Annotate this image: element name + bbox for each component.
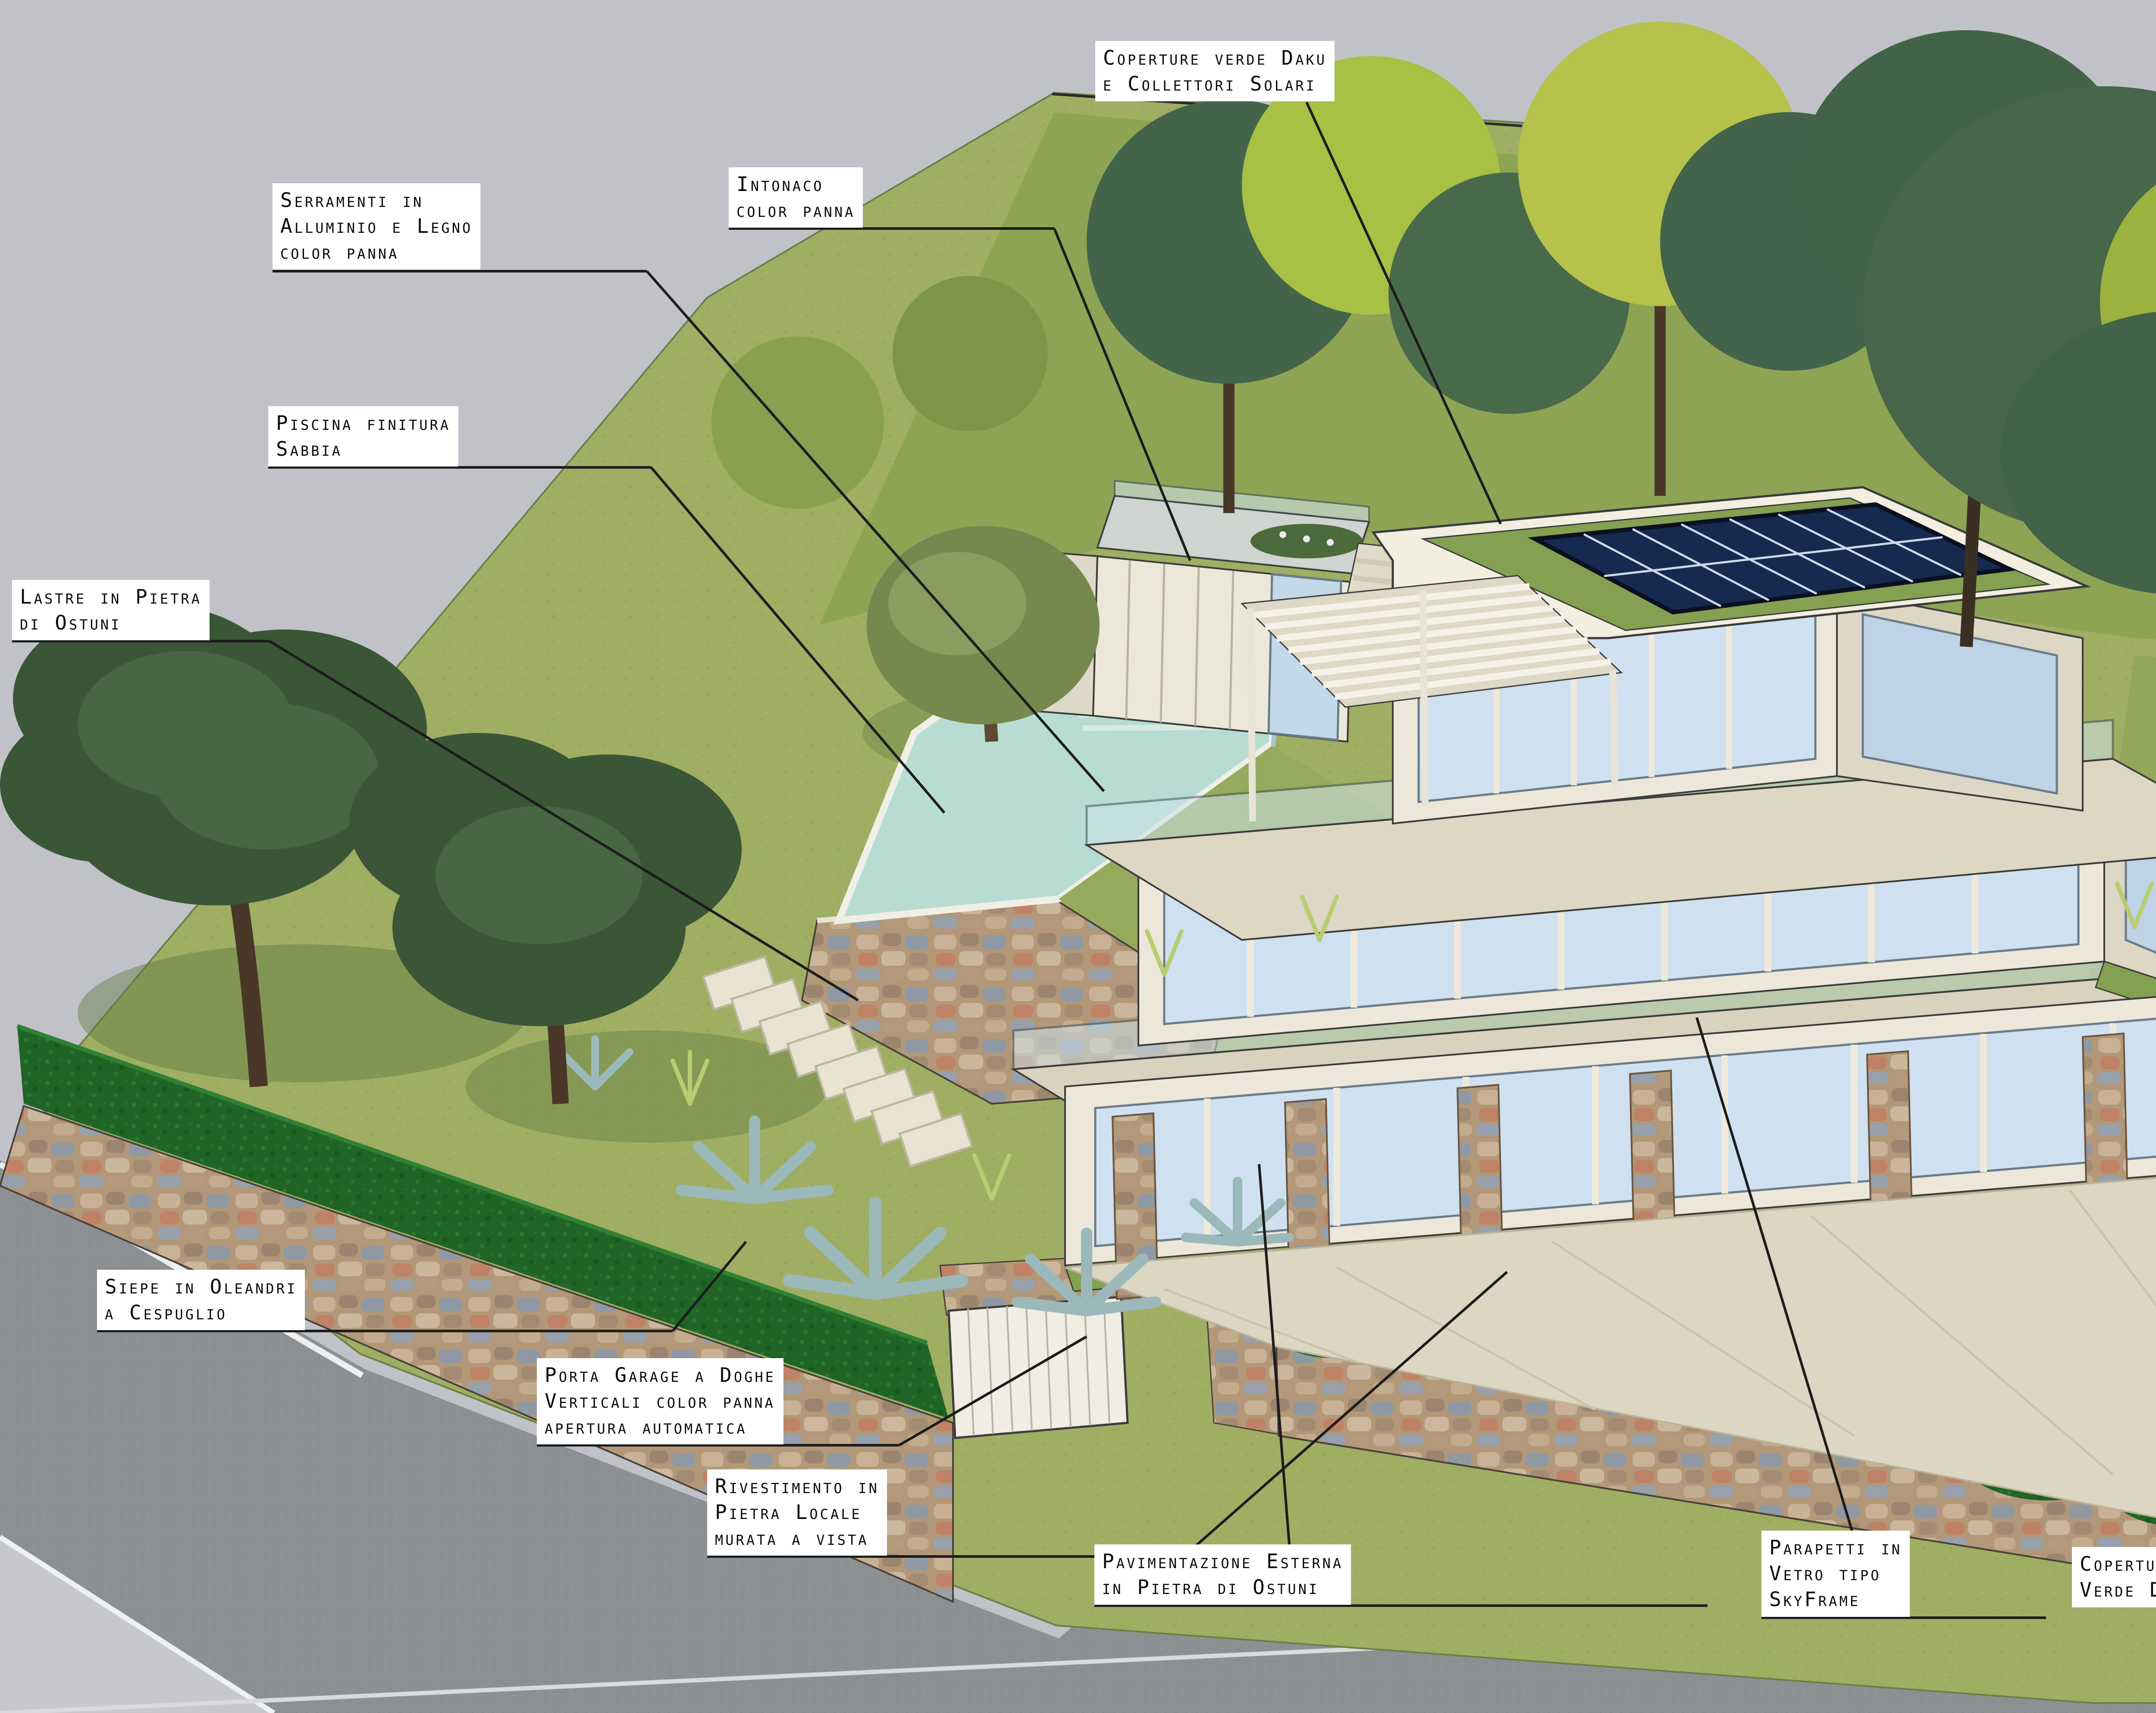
label-intonaco: Intonaco color panna: [729, 167, 863, 228]
architectural-rendering-canvas: Coperture verde Daku e Collettori Solari…: [0, 0, 2156, 1713]
label-serramenti: Serramenti in Alluminio e Legno color pa…: [273, 183, 480, 269]
label-siepe: Siepe in Oleandri a Cespuglio: [97, 1270, 305, 1330]
label-piscina: Piscina finitura Sabbia: [268, 406, 458, 467]
label-parapetti: Parapetti in Vetro tipo SkyFrame: [1761, 1531, 1910, 1617]
label-lastre: Lastre in Pietra di Ostuni: [12, 580, 210, 640]
label-copertura-verde-bottom: Copertura Verde Daku: [2072, 1547, 2156, 1607]
label-coperture-solari: Coperture verde Daku e Collettori Solari: [1095, 41, 1335, 101]
label-rivestimento: Rivestimento in Pietra Locale murata a v…: [707, 1469, 887, 1556]
label-pavimentazione: Pavimentazione Esterna in Pietra di Ostu…: [1094, 1544, 1351, 1605]
garage-door: [949, 1297, 1128, 1438]
label-porta-garage: Porta Garage a Doghe Verticali color pan…: [537, 1358, 783, 1444]
